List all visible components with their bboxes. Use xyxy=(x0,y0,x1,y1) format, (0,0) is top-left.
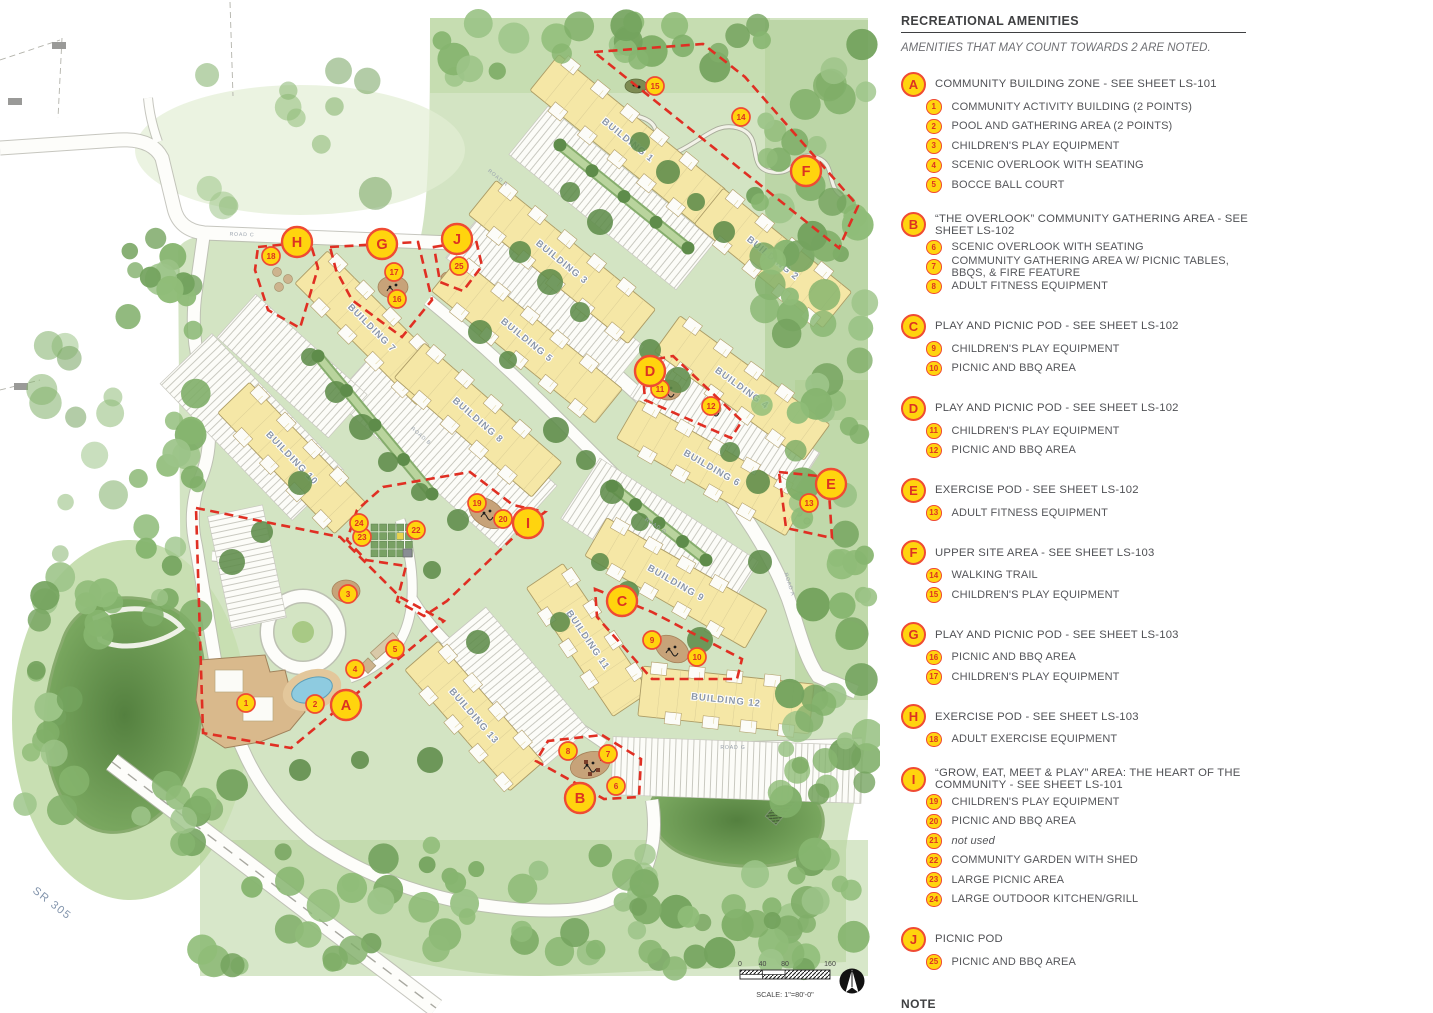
amenity-marker-22: 22 xyxy=(407,521,425,539)
legend-group-B: B“THE OVERLOOK” COMMUNITY GATHERING AREA… xyxy=(901,212,1253,297)
svg-text:15: 15 xyxy=(650,82,660,91)
zone-marker-D: D xyxy=(635,356,665,386)
highway-label: SR 305 xyxy=(30,885,73,923)
svg-text:H: H xyxy=(292,235,302,251)
svg-text:G: G xyxy=(376,237,387,253)
zone-label: UPPER SITE AREA - SEE SHEET LS-103 xyxy=(935,547,1154,559)
legend-group-H: HEXERCISE POD - SEE SHEET LS-10318ADULT … xyxy=(901,704,1253,750)
legend-groups: ACOMMUNITY BUILDING ZONE - SEE SHEET LS-… xyxy=(901,71,1253,972)
amenity-marker-13: 13 xyxy=(800,494,818,512)
amenity-marker-5: 5 xyxy=(386,640,404,658)
zone-marker-C: C xyxy=(607,586,637,616)
zone-marker-G: G xyxy=(367,229,397,259)
road-label: ROAD G xyxy=(720,745,745,751)
zone-marker-A: A xyxy=(331,690,361,720)
svg-text:D: D xyxy=(645,364,655,380)
amenity-marker-24: 24 xyxy=(350,514,368,532)
amenity-number-badge: 17 xyxy=(926,669,942,685)
svg-text:16: 16 xyxy=(392,295,402,304)
amenity-label: COMMUNITY GARDEN WITH SHED xyxy=(952,854,1138,866)
zone-letter-badge: J xyxy=(901,927,926,952)
amenity-marker-7: 7 xyxy=(599,745,617,763)
amenity-label: PICNIC AND BBQ AREA xyxy=(952,956,1077,968)
legend-item-3: 3CHILDREN'S PLAY EQUIPMENT xyxy=(926,136,1253,156)
svg-text:E: E xyxy=(826,477,836,493)
zone-label: PLAY AND PICNIC POD - SEE SHEET LS-103 xyxy=(935,629,1179,641)
amenity-marker-10: 10 xyxy=(688,648,706,666)
amenity-number-badge: 4 xyxy=(926,158,942,174)
zone-label: PLAY AND PICNIC POD - SEE SHEET LS-102 xyxy=(935,320,1179,332)
amenity-marker-12: 12 xyxy=(702,397,720,415)
amenity-number-badge: 8 xyxy=(926,279,942,295)
svg-text:23: 23 xyxy=(357,533,367,542)
legend-group-A: ACOMMUNITY BUILDING ZONE - SEE SHEET LS-… xyxy=(901,71,1253,195)
amenity-number-badge: 12 xyxy=(926,443,942,459)
legend-title: RECREATIONAL AMENITIES xyxy=(901,14,1246,33)
legend-item-19: 19CHILDREN'S PLAY EQUIPMENT xyxy=(926,792,1253,812)
legend-item-1: 1COMMUNITY ACTIVITY BUILDING (2 POINTS) xyxy=(926,97,1253,117)
svg-text:1: 1 xyxy=(244,699,249,708)
svg-text:13: 13 xyxy=(804,499,814,508)
amenity-marker-16: 16 xyxy=(388,290,406,308)
legend-item-2: 2POOL AND GATHERING AREA (2 POINTS) xyxy=(926,117,1253,137)
amenity-marker-4: 4 xyxy=(346,660,364,678)
amenity-label: PICNIC AND BBQ AREA xyxy=(952,362,1077,374)
svg-text:J: J xyxy=(453,232,461,248)
north-arrow-icon xyxy=(840,969,865,994)
svg-text:6: 6 xyxy=(614,782,619,791)
legend-group-F: FUPPER SITE AREA - SEE SHEET LS-10314WAL… xyxy=(901,540,1253,605)
svg-text:2: 2 xyxy=(313,700,318,709)
legend-item-15: 15CHILDREN'S PLAY EQUIPMENT xyxy=(926,585,1253,605)
zone-letter-badge: F xyxy=(901,540,926,565)
amenity-number-badge: 14 xyxy=(926,568,942,584)
amenity-number-badge: 3 xyxy=(926,138,942,154)
zone-marker-J: J xyxy=(442,224,472,254)
svg-text:B: B xyxy=(575,791,585,807)
svg-text:I: I xyxy=(526,516,530,532)
amenity-label: ADULT EXERCISE EQUIPMENT xyxy=(952,733,1118,745)
legend-item-5: 5BOCCE BALL COURT xyxy=(926,175,1253,195)
amenity-number-badge: 7 xyxy=(926,259,942,275)
amenity-marker-2: 2 xyxy=(306,695,324,713)
amenity-label: COMMUNITY GATHERING AREA W/ PICNIC TABLE… xyxy=(952,255,1254,279)
legend-subtitle: AMENITIES THAT MAY COUNT TOWARDS 2 ARE N… xyxy=(901,42,1253,54)
amenity-label: SCENIC OVERLOOK WITH SEATING xyxy=(952,241,1144,253)
legend-item-13: 13ADULT FITNESS EQUIPMENT xyxy=(926,503,1253,523)
amenity-label: SCENIC OVERLOOK WITH SEATING xyxy=(952,159,1144,171)
svg-text:F: F xyxy=(802,164,811,180)
zone-letter-badge: D xyxy=(901,396,926,421)
amenity-number-badge: 21 xyxy=(926,833,942,849)
zone-label: PICNIC POD xyxy=(935,933,1003,945)
legend-item-9: 9CHILDREN'S PLAY EQUIPMENT xyxy=(926,339,1253,359)
svg-text:14: 14 xyxy=(736,113,746,122)
amenity-label: ADULT FITNESS EQUIPMENT xyxy=(952,280,1108,292)
svg-text:5: 5 xyxy=(393,645,398,654)
amenity-label: CHILDREN'S PLAY EQUIPMENT xyxy=(952,796,1120,808)
amenity-number-badge: 2 xyxy=(926,119,942,135)
legend-item-12: 12PICNIC AND BBQ AREA xyxy=(926,441,1253,461)
amenity-label: BOCCE BALL COURT xyxy=(952,179,1065,191)
amenity-marker-9: 9 xyxy=(643,631,661,649)
scale-tick: 80 xyxy=(781,961,789,968)
amenity-marker-15: 15 xyxy=(646,77,664,95)
legend-item-7: 7COMMUNITY GATHERING AREA W/ PICNIC TABL… xyxy=(926,257,1253,277)
legend-item-10: 10PICNIC AND BBQ AREA xyxy=(926,359,1253,379)
amenity-number-badge: 11 xyxy=(926,423,942,439)
zone-letter-badge: G xyxy=(901,622,926,647)
zone-label: EXERCISE POD - SEE SHEET LS-102 xyxy=(935,484,1139,496)
amenity-marker-14: 14 xyxy=(732,108,750,126)
zone-label: COMMUNITY BUILDING ZONE - SEE SHEET LS-1… xyxy=(935,78,1217,90)
amenity-number-badge: 6 xyxy=(926,240,942,256)
svg-text:22: 22 xyxy=(411,526,421,535)
legend-item-8: 8ADULT FITNESS EQUIPMENT xyxy=(926,277,1253,297)
svg-text:17: 17 xyxy=(389,268,399,277)
amenity-label: CHILDREN'S PLAY EQUIPMENT xyxy=(952,671,1120,683)
svg-text:9: 9 xyxy=(650,636,655,645)
amenity-marker-18: 18 xyxy=(262,247,280,265)
legend-item-16: 16PICNIC AND BBQ AREA xyxy=(926,648,1253,668)
amenity-marker-3: 3 xyxy=(339,585,357,603)
note-title: NOTE xyxy=(901,997,1151,1013)
zone-marker-F: F xyxy=(791,156,821,186)
amenity-number-badge: 9 xyxy=(926,341,942,357)
svg-text:4: 4 xyxy=(353,665,358,674)
amenity-number-badge: 18 xyxy=(926,732,942,748)
amenity-number-badge: 24 xyxy=(926,892,942,908)
amenity-label: LARGE OUTDOOR KITCHEN/GRILL xyxy=(952,893,1139,905)
zone-letter-badge: C xyxy=(901,314,926,339)
svg-text:C: C xyxy=(617,594,628,610)
legend-item-24: 24LARGE OUTDOOR KITCHEN/GRILL xyxy=(926,890,1253,910)
site-plan-map: BUILDING 1BUILDING 2BUILDING 3BUILDING 5… xyxy=(0,0,880,1013)
legend-panel: RECREATIONAL AMENITIES AMENITIES THAT MA… xyxy=(901,14,1253,1013)
legend-group-C: CPLAY AND PICNIC POD - SEE SHEET LS-1029… xyxy=(901,313,1253,378)
amenity-label: CHILDREN'S PLAY EQUIPMENT xyxy=(952,589,1120,601)
zone-label: PLAY AND PICNIC POD - SEE SHEET LS-102 xyxy=(935,402,1179,414)
amenity-label: PICNIC AND BBQ AREA xyxy=(952,815,1077,827)
amenity-number-badge: 19 xyxy=(926,794,942,810)
svg-text:A: A xyxy=(341,698,352,714)
scale-tick: 40 xyxy=(759,961,767,968)
zone-letter-badge: E xyxy=(901,478,926,503)
zone-label: EXERCISE POD - SEE SHEET LS-103 xyxy=(935,711,1139,723)
amenity-label: POOL AND GATHERING AREA (2 POINTS) xyxy=(952,120,1173,132)
zone-marker-I: I xyxy=(513,508,543,538)
amenity-label: LARGE PICNIC AREA xyxy=(952,874,1065,886)
legend-item-4: 4SCENIC OVERLOOK WITH SEATING xyxy=(926,156,1253,176)
legend-group-E: EEXERCISE POD - SEE SHEET LS-10213ADULT … xyxy=(901,477,1253,523)
amenity-label: COMMUNITY ACTIVITY BUILDING (2 POINTS) xyxy=(952,101,1193,113)
amenity-number-badge: 23 xyxy=(926,872,942,888)
svg-text:12: 12 xyxy=(706,402,716,411)
legend-item-11: 11CHILDREN'S PLAY EQUIPMENT xyxy=(926,421,1253,441)
legend-group-G: GPLAY AND PICNIC POD - SEE SHEET LS-1031… xyxy=(901,622,1253,687)
scale-caption: SCALE: 1"=80'-0" xyxy=(756,990,814,999)
amenity-marker-25: 25 xyxy=(450,257,468,275)
legend-group-J: JPICNIC POD25PICNIC AND BBQ AREA xyxy=(901,926,1253,972)
zone-letter-badge: A xyxy=(901,72,926,97)
amenity-number-badge: 13 xyxy=(926,505,942,521)
scale-tick: 160 xyxy=(824,961,836,968)
zone-letter-badge: I xyxy=(901,767,926,792)
svg-text:10: 10 xyxy=(692,653,702,662)
zone-letter-badge: H xyxy=(901,704,926,729)
scale-tick: 0 xyxy=(738,961,742,968)
amenity-number-badge: 22 xyxy=(926,853,942,869)
legend-item-14: 14WALKING TRAIL xyxy=(926,566,1253,586)
amenity-marker-1: 1 xyxy=(237,694,255,712)
svg-text:25: 25 xyxy=(454,262,464,271)
site-plan-sheet: { "legend": { "title": "RECREATIONAL AME… xyxy=(0,0,1433,1013)
amenity-marker-19: 19 xyxy=(468,494,486,512)
amenity-number-badge: 1 xyxy=(926,99,942,115)
amenity-number-badge: 5 xyxy=(926,177,942,193)
zone-label: “THE OVERLOOK” COMMUNITY GATHERING AREA … xyxy=(935,213,1253,237)
legend-group-I: I“GROW, EAT, MEET & PLAY” AREA: THE HEAR… xyxy=(901,766,1253,909)
legend-note: NOTE See Sheets LS-104 and LS-105 for ex… xyxy=(901,997,1151,1013)
svg-text:7: 7 xyxy=(606,750,611,759)
amenity-label: CHILDREN'S PLAY EQUIPMENT xyxy=(952,140,1120,152)
zone-marker-H: H xyxy=(282,227,312,257)
legend-item-18: 18ADULT EXERCISE EQUIPMENT xyxy=(926,730,1253,750)
amenity-label: CHILDREN'S PLAY EQUIPMENT xyxy=(952,343,1120,355)
amenity-marker-20: 20 xyxy=(494,510,512,528)
amenity-label: WALKING TRAIL xyxy=(952,569,1038,581)
zone-marker-B: B xyxy=(565,783,595,813)
svg-text:18: 18 xyxy=(266,252,276,261)
amenity-number-badge: 10 xyxy=(926,361,942,377)
amenity-label: PICNIC AND BBQ AREA xyxy=(952,651,1077,663)
amenity-number-badge: 20 xyxy=(926,814,942,830)
amenity-label: PICNIC AND BBQ AREA xyxy=(952,444,1077,456)
legend-item-23: 23LARGE PICNIC AREA xyxy=(926,870,1253,890)
svg-text:3: 3 xyxy=(346,590,351,599)
legend-item-25: 25PICNIC AND BBQ AREA xyxy=(926,952,1253,972)
legend-item-17: 17CHILDREN'S PLAY EQUIPMENT xyxy=(926,667,1253,687)
road-label: ROAD C xyxy=(229,232,254,239)
legend-item-22: 22COMMUNITY GARDEN WITH SHED xyxy=(926,851,1253,871)
zone-label: “GROW, EAT, MEET & PLAY” AREA: THE HEART… xyxy=(935,767,1253,791)
amenity-number-badge: 25 xyxy=(926,954,942,970)
legend-group-D: DPLAY AND PICNIC POD - SEE SHEET LS-1021… xyxy=(901,395,1253,460)
zone-marker-E: E xyxy=(816,469,846,499)
amenity-marker-17: 17 xyxy=(385,263,403,281)
svg-text:20: 20 xyxy=(498,515,508,524)
amenity-marker-8: 8 xyxy=(559,742,577,760)
zone-letter-badge: B xyxy=(901,212,926,237)
legend-item-21: 21not used xyxy=(926,831,1253,851)
legend-item-20: 20PICNIC AND BBQ AREA xyxy=(926,812,1253,832)
amenity-label: not used xyxy=(952,835,995,847)
svg-text:11: 11 xyxy=(656,385,665,394)
amenity-label: CHILDREN'S PLAY EQUIPMENT xyxy=(952,425,1120,437)
svg-text:24: 24 xyxy=(354,519,364,528)
svg-text:8: 8 xyxy=(566,747,571,756)
amenity-label: ADULT FITNESS EQUIPMENT xyxy=(952,507,1108,519)
svg-text:19: 19 xyxy=(472,499,482,508)
amenity-number-badge: 15 xyxy=(926,587,942,603)
amenity-number-badge: 16 xyxy=(926,650,942,666)
amenity-marker-6: 6 xyxy=(607,777,625,795)
